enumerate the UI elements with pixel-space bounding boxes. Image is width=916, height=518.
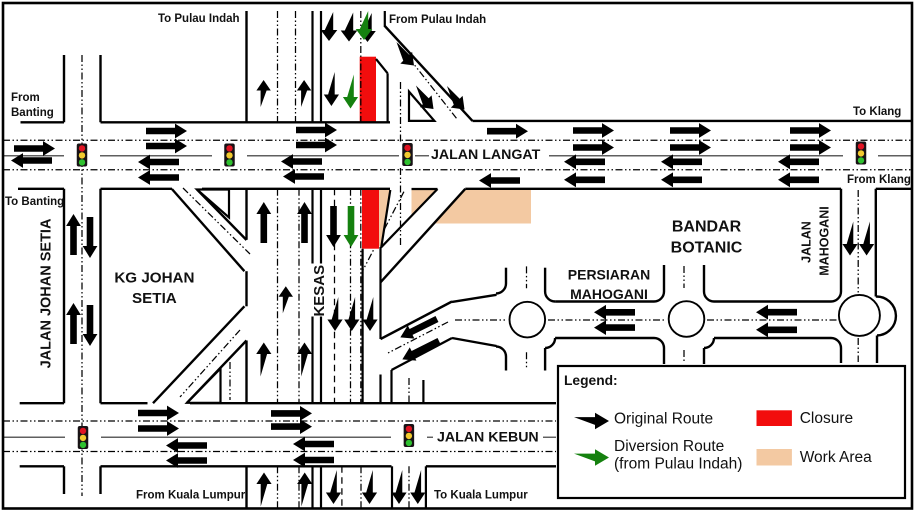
svg-text:JALAN LANGAT: JALAN LANGAT	[431, 147, 541, 163]
svg-text:Work Area: Work Area	[800, 449, 872, 466]
svg-text:MAHOGANI: MAHOGANI	[818, 206, 832, 275]
svg-text:From Pulau Indah: From Pulau Indah	[389, 14, 486, 26]
svg-text:SETIA: SETIA	[132, 290, 177, 307]
svg-text:JALAN KEBUN: JALAN KEBUN	[437, 430, 539, 446]
svg-text:KG JOHAN: KG JOHAN	[114, 270, 194, 287]
svg-text:(from Pulau Indah): (from Pulau Indah)	[614, 456, 742, 473]
svg-text:JALAN JOHAN SETIA: JALAN JOHAN SETIA	[39, 218, 55, 368]
svg-text:From Klang: From Klang	[847, 174, 911, 186]
svg-text:From: From	[11, 92, 40, 104]
svg-text:To Pulau Indah: To Pulau Indah	[158, 13, 240, 25]
svg-text:To Kuala Lumpur: To Kuala Lumpur	[434, 490, 528, 502]
svg-text:Closure: Closure	[800, 410, 853, 427]
svg-text:From Kuala Lumpur: From Kuala Lumpur	[136, 490, 246, 502]
svg-text:To Banting: To Banting	[5, 196, 64, 208]
svg-text:KESAS: KESAS	[311, 265, 328, 317]
svg-text:BOTANIC: BOTANIC	[671, 240, 743, 257]
svg-text:PERSIARAN: PERSIARAN	[568, 267, 650, 283]
svg-text:Diversion Route: Diversion Route	[614, 438, 724, 455]
svg-text:JALAN: JALAN	[800, 221, 814, 263]
svg-text:MAHOGANI: MAHOGANI	[570, 286, 648, 302]
svg-text:Original Route: Original Route	[614, 411, 713, 428]
svg-text:Legend:: Legend:	[564, 373, 618, 388]
svg-text:To Klang: To Klang	[853, 106, 901, 118]
svg-text:BANDAR: BANDAR	[672, 219, 742, 236]
svg-text:Banting: Banting	[11, 107, 54, 119]
